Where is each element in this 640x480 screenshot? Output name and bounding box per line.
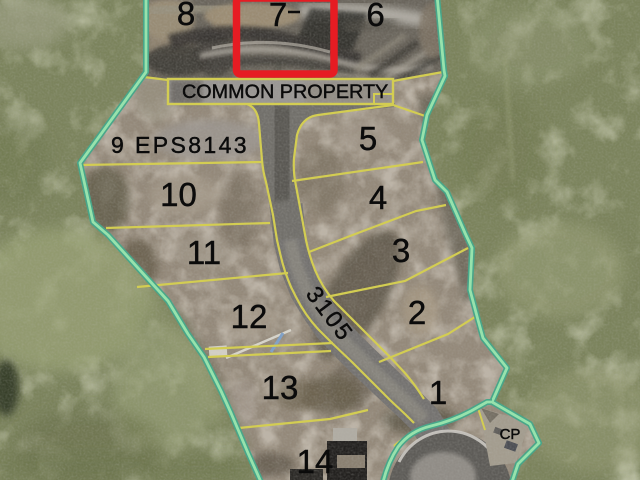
svg-text:11: 11 [187,234,221,271]
svg-text:10: 10 [160,176,197,213]
svg-text:13: 13 [262,369,299,406]
svg-text:12: 12 [231,298,268,335]
svg-text:1: 1 [429,374,447,411]
svg-text:4: 4 [369,179,387,216]
svg-text:5: 5 [359,120,377,157]
svg-text:7: 7 [269,0,287,33]
svg-text:8: 8 [177,0,195,32]
svg-text:COMMON PROPERTY: COMMON PROPERTY [182,81,388,103]
svg-text:14: 14 [297,443,334,480]
svg-text:3: 3 [392,232,410,269]
svg-text:6: 6 [366,0,384,33]
svg-text:2: 2 [408,294,426,331]
svg-text:9 EPS8143: 9 EPS8143 [111,132,249,158]
svg-text:CP: CP [500,426,521,443]
